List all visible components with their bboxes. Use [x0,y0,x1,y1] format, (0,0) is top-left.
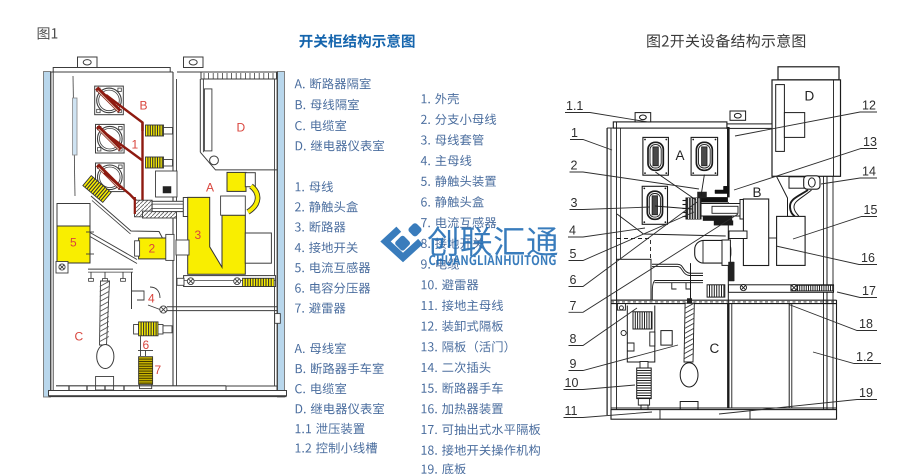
svg-text:19: 19 [859,386,873,400]
svg-text:17: 17 [862,284,876,298]
svg-text:A: A [676,148,685,163]
svg-text:11: 11 [565,404,578,418]
svg-text:1: 1 [132,138,139,152]
svg-text:6: 6 [143,338,150,352]
svg-text:16: 16 [861,251,875,265]
svg-text:2: 2 [149,242,156,256]
svg-text:1: 1 [571,126,578,140]
svg-text:13: 13 [863,135,877,149]
svg-text:1.2: 1.2 [856,350,873,364]
svg-text:1.1: 1.1 [566,99,583,113]
svg-text:10: 10 [565,376,579,390]
svg-text:2: 2 [571,159,578,173]
svg-text:B: B [140,99,148,113]
svg-text:C: C [710,341,720,356]
svg-text:3: 3 [571,196,578,210]
svg-text:15: 15 [864,203,878,217]
svg-text:4: 4 [569,224,576,238]
svg-text:D: D [237,121,246,135]
svg-text:C: C [75,330,84,344]
svg-text:D: D [805,89,815,104]
svg-text:14: 14 [862,165,876,179]
svg-text:4: 4 [148,292,155,306]
svg-text:5: 5 [70,236,77,250]
svg-text:12: 12 [862,99,876,113]
svg-text:18: 18 [859,317,873,331]
svg-text:B: B [753,185,762,200]
svg-text:5: 5 [570,247,577,261]
svg-text:8: 8 [570,332,577,346]
svg-text:7: 7 [155,363,162,377]
svg-text:3: 3 [195,228,202,242]
svg-text:A: A [206,181,214,195]
svg-text:9: 9 [570,357,577,371]
svg-text:7: 7 [570,299,577,313]
svg-text:6: 6 [570,273,577,287]
